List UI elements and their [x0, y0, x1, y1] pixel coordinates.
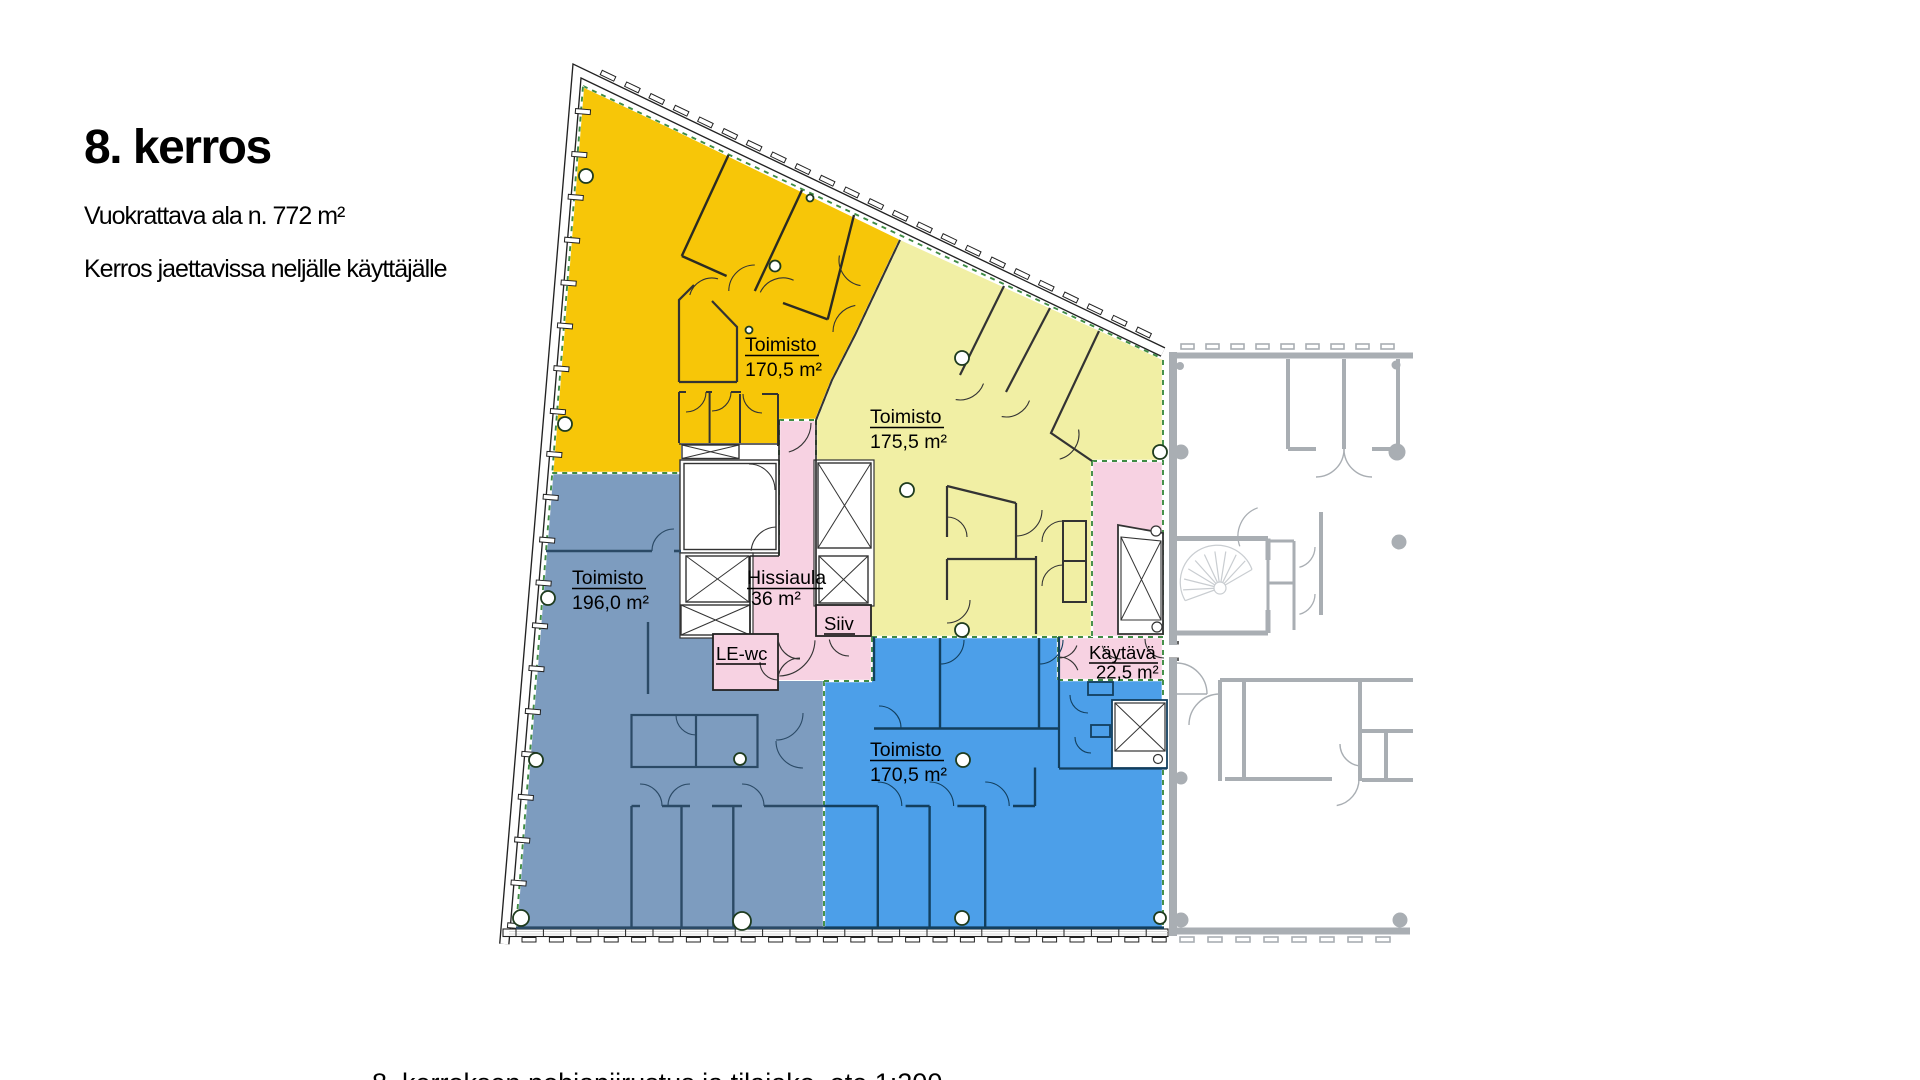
svg-text:170,5 m²: 170,5 m² [870, 764, 947, 786]
svg-text:22,5 m²: 22,5 m² [1096, 662, 1159, 683]
svg-text:36 m²: 36 m² [751, 588, 801, 610]
svg-text:Vuokrattava ala n. 772 m²: Vuokrattava ala n. 772 m² [84, 202, 345, 230]
svg-text:8. kerroksen pohjapiirustus ja: 8. kerroksen pohjapiirustus ja tilajako,… [372, 1068, 942, 1080]
svg-text:Toimisto: Toimisto [745, 334, 817, 356]
svg-text:LE-wc: LE-wc [716, 643, 767, 664]
svg-text:196,0 m²: 196,0 m² [572, 592, 649, 614]
svg-text:Kerros jaettavissa neljälle kä: Kerros jaettavissa neljälle käyttäjälle [84, 255, 447, 283]
svg-text:170,5 m²: 170,5 m² [745, 359, 822, 381]
svg-text:Siiv: Siiv [824, 613, 855, 634]
svg-text:8. kerros: 8. kerros [84, 121, 271, 174]
svg-text:Hissiaula: Hissiaula [747, 567, 826, 589]
svg-text:175,5 m²: 175,5 m² [870, 431, 947, 453]
svg-text:Toimisto: Toimisto [572, 567, 644, 589]
svg-text:Toimisto: Toimisto [870, 739, 942, 761]
svg-text:Toimisto: Toimisto [870, 406, 942, 428]
svg-text:Käytävä: Käytävä [1089, 642, 1157, 663]
